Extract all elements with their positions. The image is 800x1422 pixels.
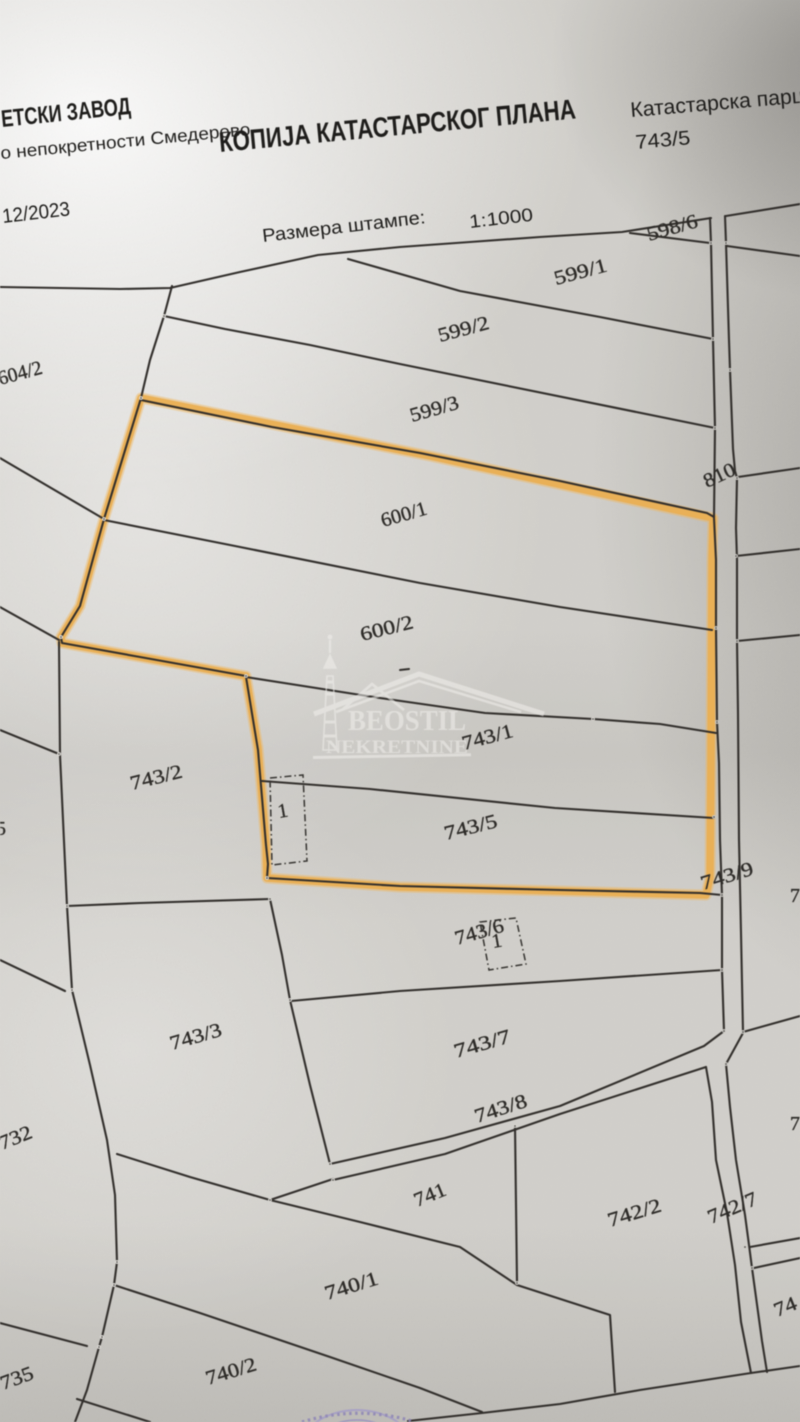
svg-text:7: 7 — [790, 1113, 800, 1135]
svg-text:5: 5 — [0, 818, 6, 840]
svg-text:7: 7 — [790, 885, 800, 907]
svg-text:BEOSTIL: BEOSTIL — [348, 705, 466, 737]
